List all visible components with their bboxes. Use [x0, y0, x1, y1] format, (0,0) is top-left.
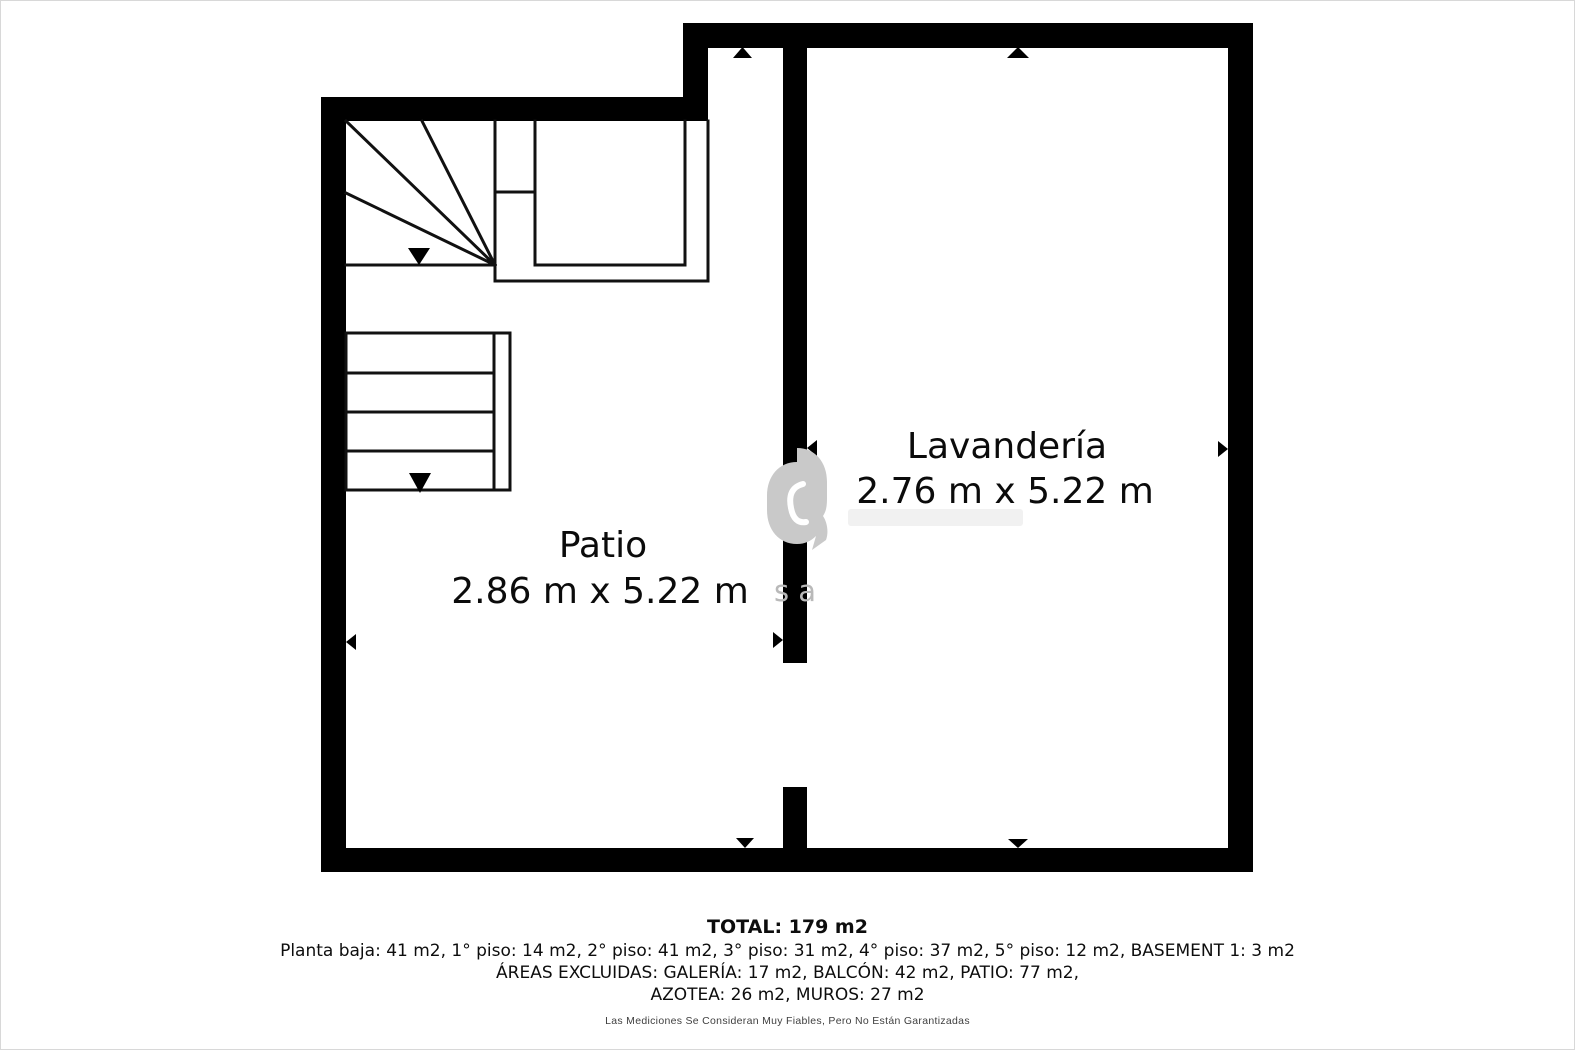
lavanderia-bottom-down-arrow-icon [1008, 839, 1028, 848]
left-wall-opening-marker-icon [346, 634, 356, 650]
walls [321, 23, 1253, 872]
floorplan-drawing: s a Patio 2.86 m x 5.22 m Lavandería 2.7… [0, 0, 1575, 1050]
right-wall-opening-marker-icon [1218, 441, 1228, 457]
lavanderia-entry-up-arrow-icon [1007, 47, 1029, 58]
summary-excluded-areas: ÁREAS EXCLUIDAS: GALERÍA: 17 m2, BALCÓN:… [0, 963, 1575, 983]
wall-top-left-section [321, 97, 708, 121]
summary-excluded-areas-2: AZOTEA: 26 m2, MUROS: 27 m2 [0, 985, 1575, 1005]
wall-left [321, 97, 346, 872]
wall-bottom [321, 848, 1253, 872]
watermark-letters: s a [774, 574, 816, 608]
floorplan-page: s a Patio 2.86 m x 5.22 m Lavandería 2.7… [0, 0, 1575, 1050]
wall-center-divider-stub [783, 787, 807, 848]
watermark-camera-icon [767, 448, 827, 550]
straight-stair-lines [346, 333, 510, 490]
winder-stair-lines [346, 121, 535, 265]
room-dimensions-patio: 2.86 m x 5.22 m [451, 571, 749, 612]
interior-lines [346, 121, 708, 490]
patio-bottom-down-arrow-icon [736, 838, 754, 848]
summary-floors: Planta baja: 41 m2, 1° piso: 14 m2, 2° p… [0, 941, 1575, 961]
wall-top-right-section [683, 23, 1253, 48]
room-name-patio: Patio [559, 525, 647, 566]
wall-right [1228, 23, 1253, 872]
wall-connector-vertical [683, 23, 708, 121]
partition-room-lines [495, 121, 708, 281]
corridor-entry-up-arrow-icon [733, 47, 752, 58]
summary-disclaimer: Las Mediciones Se Consideran Muy Fiables… [0, 1015, 1575, 1027]
winder-stairs-down-arrow-icon [408, 248, 430, 265]
room-name-lavanderia: Lavandería [907, 426, 1107, 467]
summary-total: TOTAL: 179 m2 [0, 916, 1575, 938]
center-wall-left-marker-icon [773, 632, 783, 648]
room-dimensions-lavanderia: 2.76 m x 5.22 m [856, 471, 1154, 512]
wall-center-divider [783, 23, 807, 663]
